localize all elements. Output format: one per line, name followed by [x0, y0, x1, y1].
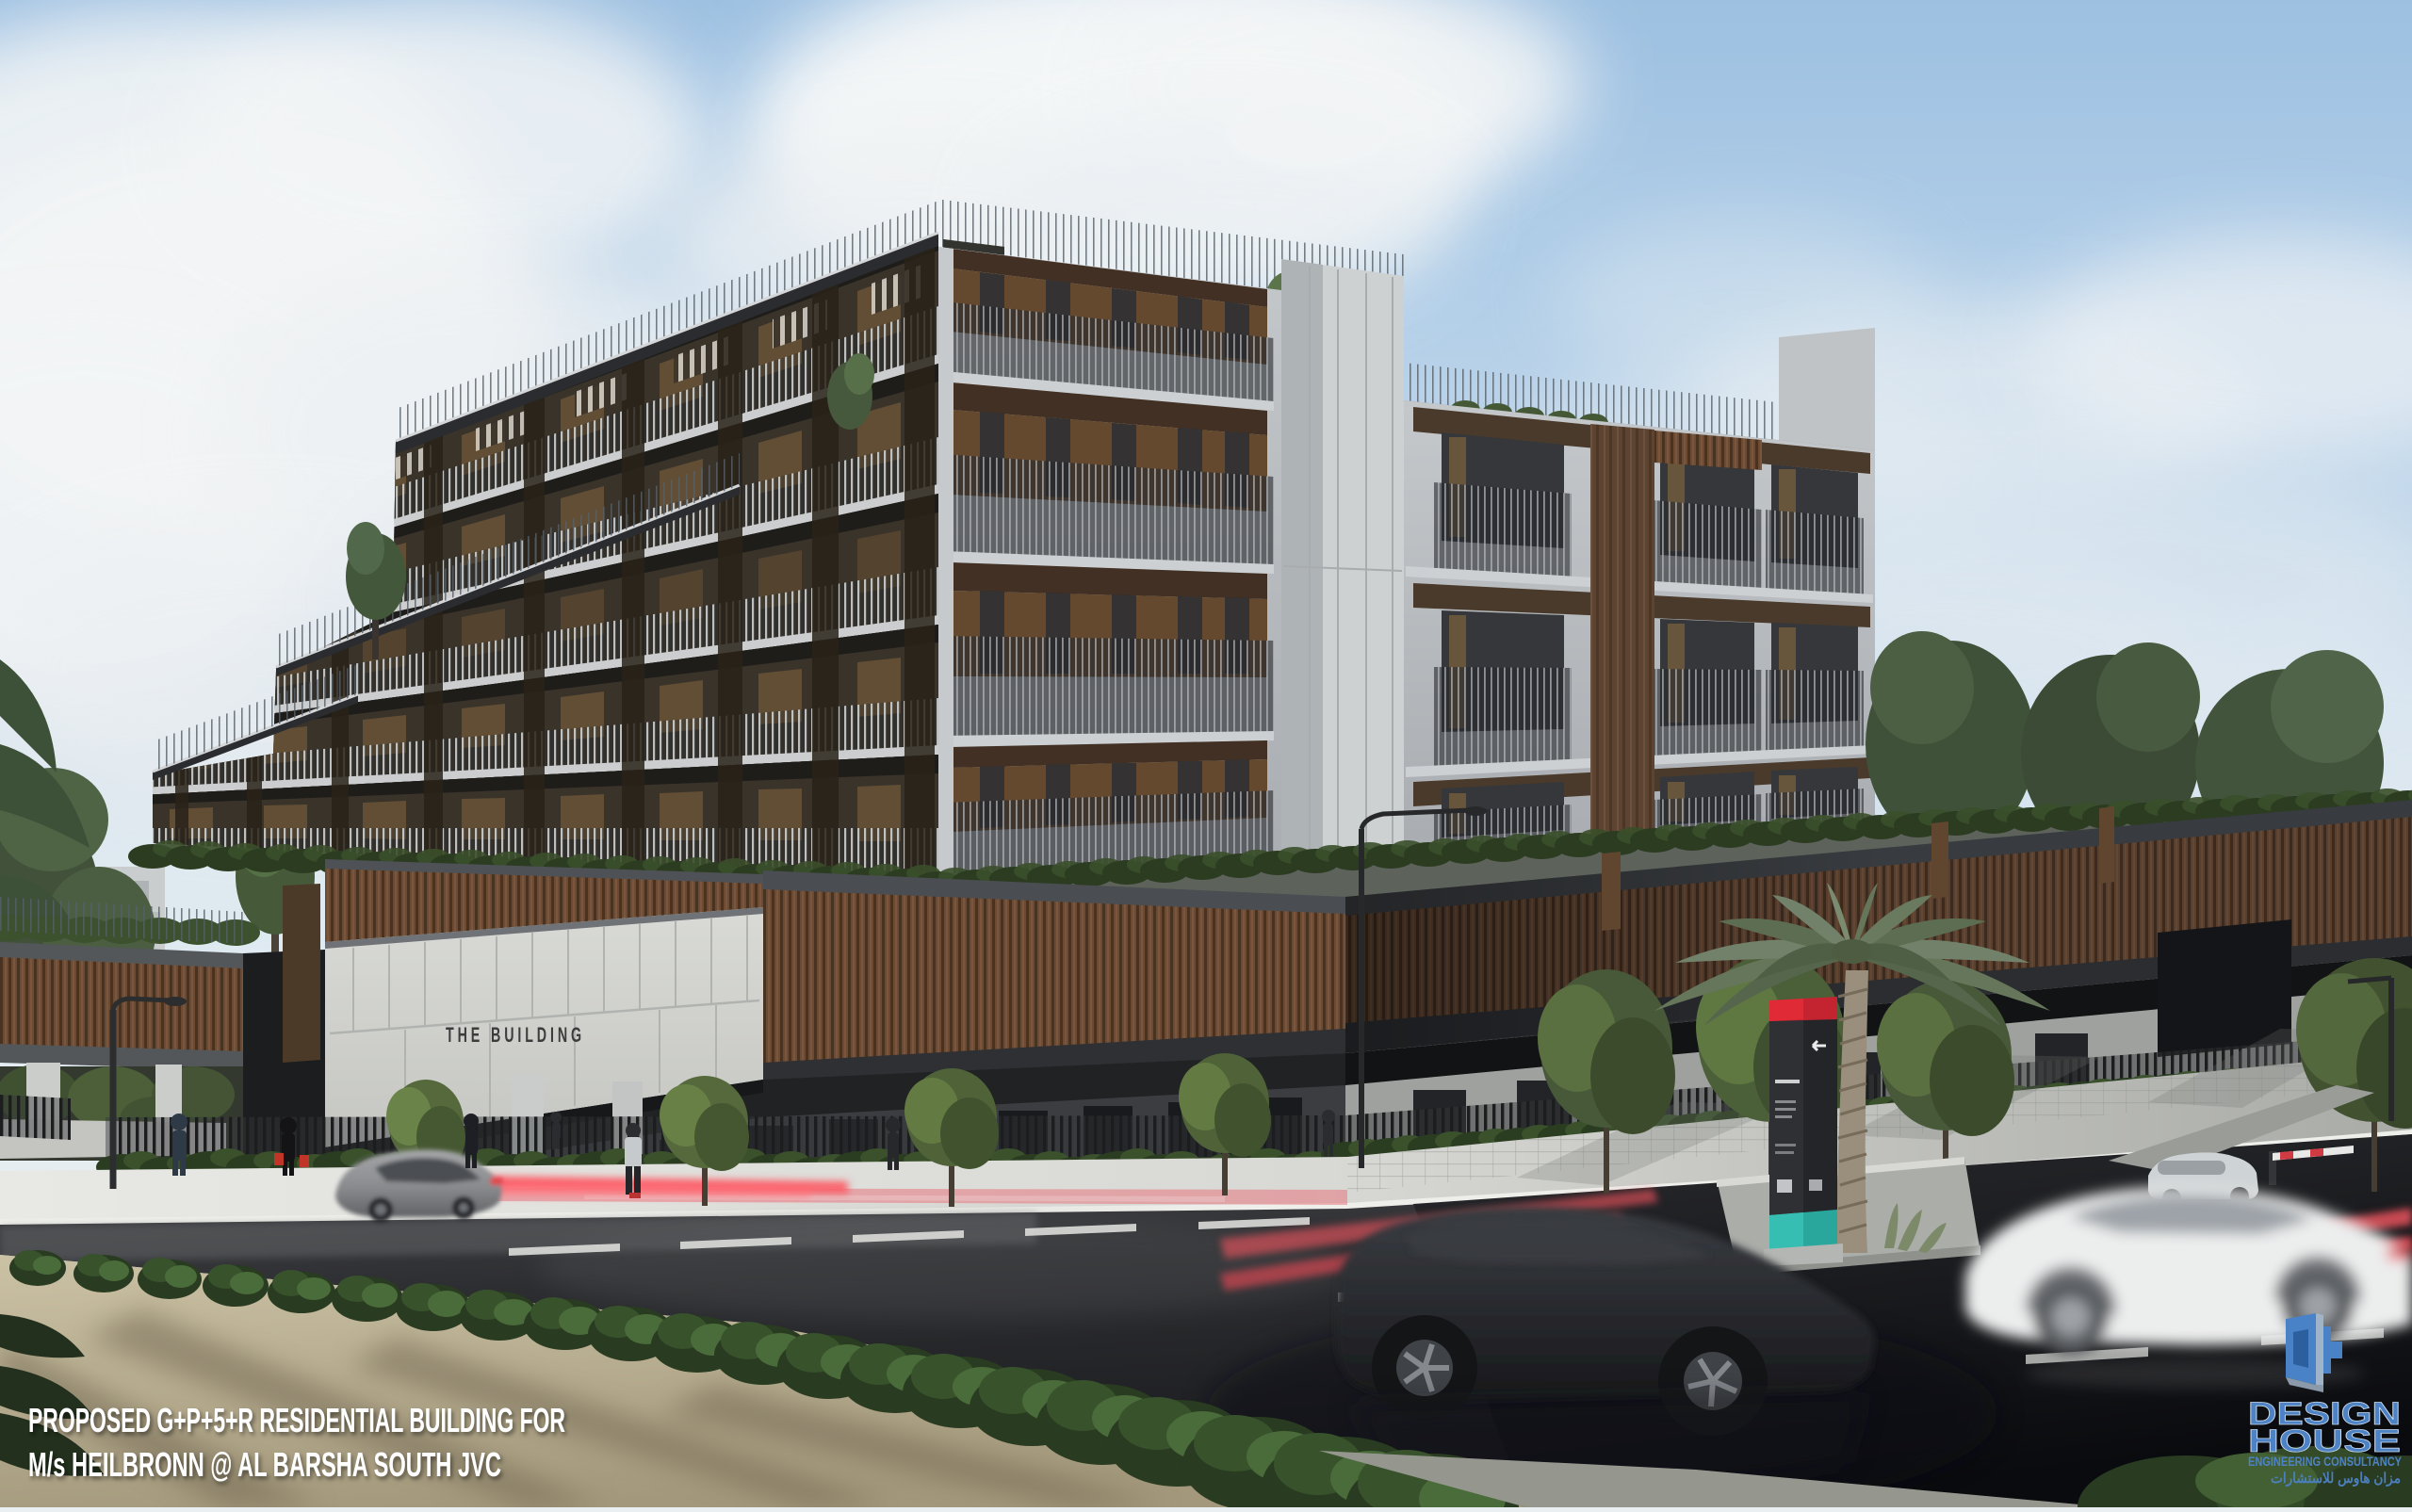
svg-text:THE BUILDING: THE BUILDING [446, 1023, 585, 1047]
svg-text:مزان هاوس للاستشارات: مزان هاوس للاستشارات [2271, 1471, 2401, 1487]
svg-text:M/s HEILBRONN @ AL BARSHA SOUT: M/s HEILBRONN @ AL BARSHA SOUTH JVC [28, 1445, 501, 1484]
svg-text:ENGINEERING CONSULTANCY: ENGINEERING CONSULTANCY [2248, 1455, 2402, 1469]
svg-text:PROPOSED G+P+5+R RESIDENTIAL B: PROPOSED G+P+5+R RESIDENTIAL BUILDING FO… [28, 1401, 565, 1439]
